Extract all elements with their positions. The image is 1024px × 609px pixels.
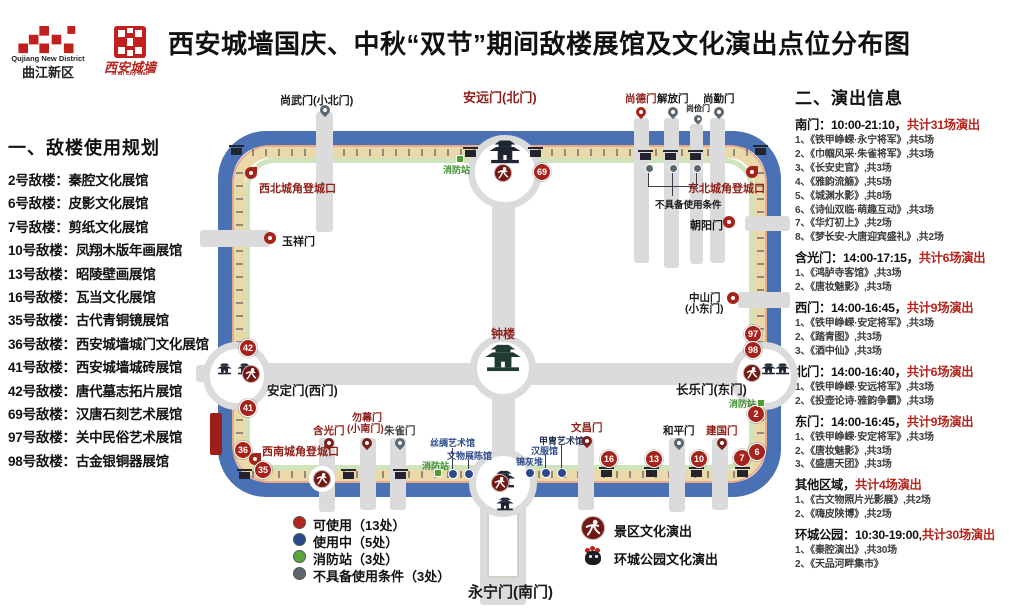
tower-plan-item: 16号敌楼：瓦当文化展馆 <box>8 286 226 309</box>
bell-tower-icon <box>482 342 524 372</box>
qujiang-logo-zh: 曲江新区 <box>0 62 96 81</box>
shangde-gate-pin <box>634 105 648 119</box>
gate-label-heping: 和平门 <box>663 423 695 438</box>
gate-label-chaoyang: 朝阳门 <box>690 217 723 233</box>
show-item: 1、《秦腔演出》,共30场 <box>795 544 1023 558</box>
leader-line <box>545 454 546 469</box>
section-label: 东门：14:00-16:45， <box>795 415 907 429</box>
gate-label-wenchang: 文昌门 <box>571 420 603 435</box>
gate-label-anyuan: 安远门(北门) <box>463 87 537 106</box>
legend-usable-dot <box>293 516 306 529</box>
gate-label-jiefang: 解放门 <box>657 91 689 106</box>
section-label: 其他区域， <box>795 478 855 492</box>
section-count: 共计9场演出 <box>907 415 974 429</box>
legend-unavailable-dot <box>293 567 306 580</box>
legend-fire-dot <box>293 550 306 563</box>
shangjian-gate-pin <box>692 113 703 124</box>
show-item: 6、《诗仙双临·萌趣互动》,共3场 <box>795 204 1023 218</box>
show-item: 4、《雅韵流觞》,共5场 <box>795 176 1023 190</box>
show-item: 3、《盛唐天团》,共3场 <box>795 458 1023 472</box>
leader-line <box>561 445 562 469</box>
gate-label-zhuque: 朱雀门 <box>384 423 416 438</box>
section-count: 共计6场演出 <box>919 251 986 265</box>
wall-tower-icon <box>395 472 406 479</box>
poster: Qujiang New District 曲江新区 西安城墙 Xi'an Cit… <box>0 0 1024 609</box>
tower-plan-item: 36号敌楼：西安城墙城门文化展馆 <box>8 333 226 356</box>
show-item: 1、《铁甲峥嵘·永宁将军》,共5场 <box>795 134 1023 148</box>
legend-scenic-show-icon <box>581 516 605 540</box>
ne-entry-icon <box>746 166 758 178</box>
wall-tower-icon <box>231 148 242 155</box>
road-yuxiang-gate <box>200 230 270 247</box>
section-other-areas: 其他区域，共计4场演出 <box>795 475 1023 493</box>
tower-plan-item: 42号敌楼：唐代墓志拓片展馆 <box>8 380 226 403</box>
road-heping-gate <box>669 438 685 512</box>
show-item: 2、《唐妆魅影》,共3场 <box>795 281 1023 295</box>
bracket-line <box>672 173 673 186</box>
poi-label-unavailable: 不具备使用条件 <box>655 197 722 211</box>
gate-label-anding: 安定门(西门) <box>267 380 338 399</box>
section-count: 共计30场演出 <box>922 528 995 542</box>
unavailable-dot <box>669 164 678 173</box>
tower-plan-panel: 一、敌楼使用规划 2号敌楼：秦腔文化展馆 6号敌楼：皮影文化展馆 7号敌楼：剪纸… <box>8 134 226 473</box>
show-item: 2、《天品河畔集市》 <box>795 558 1023 572</box>
gate-label-changle: 长乐门(东门) <box>676 379 747 398</box>
tower-badge-2: 2 <box>747 405 765 423</box>
tower-plan-item: 7号敌楼：剪纸文化展馆 <box>8 216 226 239</box>
poi-label-nw-entry: 西北城角登城口 <box>259 180 336 196</box>
wall-tower-icon <box>343 472 354 479</box>
tower-badge-10: 10 <box>690 450 708 468</box>
section-count: 共计4场演出 <box>855 478 922 492</box>
section-east-gate: 东门：14:00-16:45，共计9场演出 <box>795 412 1023 430</box>
wall-tower-icon <box>665 153 676 160</box>
west-wall-banner <box>210 413 222 455</box>
tower-badge-13: 13 <box>645 450 663 468</box>
roundabout-west-gate <box>203 342 271 410</box>
poi-label-bell-tower: 钟楼 <box>491 325 515 342</box>
section-label: 南门：10:00-21:10， <box>795 118 907 132</box>
legend-unavailable-label: 不具备使用条件（3处） <box>313 566 450 585</box>
gate-label-jianguo: 建国门 <box>706 423 738 438</box>
jiefang-gate-pin <box>666 105 680 119</box>
bracket-line <box>696 173 697 186</box>
leader-line <box>452 448 453 469</box>
zhongshan-gate-poi-icon <box>727 292 739 304</box>
section-ring-park: 环城公园：10:30-19:00,共计30场演出 <box>795 525 1023 543</box>
section-count: 共计6场演出 <box>907 365 974 379</box>
in-use-dot <box>525 468 535 478</box>
south-barbican-tower-icon <box>495 496 515 511</box>
citywall-logo-seal-icon <box>114 26 146 58</box>
section-count: 共计9场演出 <box>907 301 974 315</box>
gate-label-yongning: 永宁门(南门) <box>468 581 553 602</box>
unavailable-dot <box>645 164 654 173</box>
tower-badge-35: 35 <box>254 461 272 479</box>
tower-plan-heading: 一、敌楼使用规划 <box>8 134 226 160</box>
show-item: 3、《酒中仙》,共3场 <box>795 345 1023 359</box>
legend-park-show-icon <box>582 546 604 567</box>
gate-label-shangqin: 尚勤门 <box>703 91 735 106</box>
tower-plan-item: 97号敌楼：关中民俗艺术展馆 <box>8 426 226 449</box>
qujiang-logo-icon <box>18 26 80 54</box>
show-item: 2、《踏青图》,共3场 <box>795 331 1023 345</box>
gate-label-shangwu: 尚武门(小北门) <box>280 92 353 108</box>
wall-tower-icon <box>737 470 748 477</box>
tower-plan-item: 35号敌楼：古代青铜镜展馆 <box>8 309 226 332</box>
fire-station-label: 消防站 <box>443 163 470 176</box>
tower-badge-16: 16 <box>600 450 618 468</box>
chaoyang-gate-poi-icon <box>723 216 735 228</box>
yuxiang-gate-poi-icon <box>264 232 276 244</box>
west-gate-tower-icon <box>216 362 233 375</box>
show-info-heading: 二、演出信息 <box>795 84 1023 109</box>
shangqin-gate-pin <box>712 105 726 119</box>
wall-tower-icon <box>530 150 541 157</box>
show-item: 2、《嗨皮陕博》,共2场 <box>795 508 1023 522</box>
section-hanguang-gate: 含光门：14:00-17:15，共计6场演出 <box>795 248 1023 266</box>
road-chaoyang-gate <box>745 216 790 231</box>
in-use-dot <box>557 468 567 478</box>
wall-tower-icon <box>465 150 476 157</box>
wall-tower-icon <box>601 470 612 477</box>
citywall-logo-en: Xi'an City Wall <box>98 71 162 77</box>
show-item: 1、《古文物照片光影展》,共2场 <box>795 494 1023 508</box>
tower-badge-69: 69 <box>533 163 551 181</box>
wall-tower-icon <box>640 153 651 160</box>
fire-station-dot <box>757 399 765 407</box>
wall-tower-icon <box>239 472 250 479</box>
gate-label-yuxiang: 玉祥门 <box>282 233 315 249</box>
show-item: 1、《铁甲峥嵘·安远将军》,共3场 <box>795 381 1023 395</box>
scenic-show-icon <box>743 364 761 382</box>
tower-plan-item: 6号敌楼：皮影文化展馆 <box>8 192 226 215</box>
show-info-panel: 二、演出信息 南门：10:00-21:10，共计31场演出 1、《铁甲峥嵘·永宁… <box>795 84 1023 572</box>
show-item: 2、《巾帼风采·朱雀将军》,共3场 <box>795 148 1023 162</box>
scenic-show-icon <box>313 470 331 488</box>
hall-label-relics: 文物展陈馆 <box>447 449 492 462</box>
tower-plan-item: 13号敌楼：昭陵壁画展馆 <box>8 263 226 286</box>
tower-plan-item: 69号敌楼：汉唐石刻艺术展馆 <box>8 403 226 426</box>
wall-tower-icon <box>691 470 702 477</box>
wall-tower-icon <box>755 148 766 155</box>
bracket-line <box>672 186 673 196</box>
section-west-gate: 西门：14:00-16:45，共计9场演出 <box>795 298 1023 316</box>
road-wenchang-gate <box>578 438 594 510</box>
road-zhongshan-gate <box>738 292 790 308</box>
show-item: 8、《梦长安-大唐迎宾盛礼》,共2场 <box>795 231 1023 245</box>
tower-badge-41: 41 <box>239 399 257 417</box>
road-north-axis <box>492 206 515 338</box>
show-item: 7、《华灯初上》,共2场 <box>795 217 1023 231</box>
scenic-show-icon <box>494 164 512 182</box>
show-item: 2、《唐妆魅影》,共3场 <box>795 445 1023 459</box>
scenic-show-icon <box>242 365 260 383</box>
north-gate-tower-icon <box>487 138 523 164</box>
section-label: 环城公园：10:30-19:00, <box>795 528 922 542</box>
legend-inuse-dot <box>293 533 306 546</box>
gate-label-zhongshan2: (小东门) <box>685 301 724 316</box>
show-item: 1、《铁甲峥嵘·安定将军》,共3场 <box>795 317 1023 331</box>
page-title: 西安城墙国庆、中秋“双节”期间敌楼展馆及文化演出点位分布图 <box>168 24 796 61</box>
tower-plan-item: 10号敌楼：凤翔木版年画展馆 <box>8 239 226 262</box>
in-use-dot <box>448 469 458 479</box>
in-use-dot <box>464 469 474 479</box>
scenic-show-icon <box>491 474 509 492</box>
road-shangwu-gate <box>316 112 333 232</box>
gate-label-wumu2: (小南门) <box>347 420 384 435</box>
tower-plan-item: 41号敌楼：西安城墙城砖展馆 <box>8 356 226 379</box>
fire-station-dot <box>434 469 442 477</box>
leader-line <box>468 460 469 469</box>
tower-plan-item: 98号敌楼：古金银铜器展馆 <box>8 450 226 473</box>
section-south-gate: 南门：10:00-21:10，共计31场演出 <box>795 115 1023 133</box>
east-gate-tower-icon <box>774 362 791 375</box>
bracket-line <box>648 173 649 186</box>
section-label: 含光门：14:00-17:15， <box>795 251 919 265</box>
wall-tower-icon <box>646 470 657 477</box>
in-use-dot <box>541 468 551 478</box>
legend-park-show-label: 环城公园文化演出 <box>614 549 718 568</box>
legend-scenic-show-label: 景区文化演出 <box>614 521 692 540</box>
nw-entry-icon <box>245 167 257 179</box>
section-label: 北门：14:00-16:40， <box>795 365 907 379</box>
tower-badge-42: 42 <box>239 339 257 357</box>
tower-badge-6: 6 <box>748 443 766 461</box>
show-item: 5、《城渊水影》,共8场 <box>795 190 1023 204</box>
tower-plan-item: 2号敌楼：秦腔文化展馆 <box>8 169 226 192</box>
tower-badge-36: 36 <box>234 441 252 459</box>
gate-label-shangde: 尚德门 <box>625 91 657 106</box>
wall-tower-icon <box>690 153 701 160</box>
section-count: 共计31场演出 <box>907 118 980 132</box>
poi-label-ne-entry: 东北城角登城口 <box>688 180 765 196</box>
show-item: 1、《鸿胪寺客馆》,共3场 <box>795 267 1023 281</box>
show-item: 1、《铁甲峥嵘·安定将军》,共3场 <box>795 431 1023 445</box>
section-north-gate: 北门：14:00-16:40，共计6场演出 <box>795 362 1023 380</box>
tower-badge-98: 98 <box>744 341 762 359</box>
show-item: 3、《长安史官》,共3场 <box>795 162 1023 176</box>
gate-label-hanguang: 含光门 <box>313 423 345 438</box>
road-shangde-gate <box>634 118 649 263</box>
section-label: 西门：14:00-16:45， <box>795 301 907 315</box>
unavailable-dot <box>693 164 702 173</box>
fire-station-dot <box>456 155 464 163</box>
show-item: 2、《投壶论诗·雅韵争霸》,共3场 <box>795 395 1023 409</box>
